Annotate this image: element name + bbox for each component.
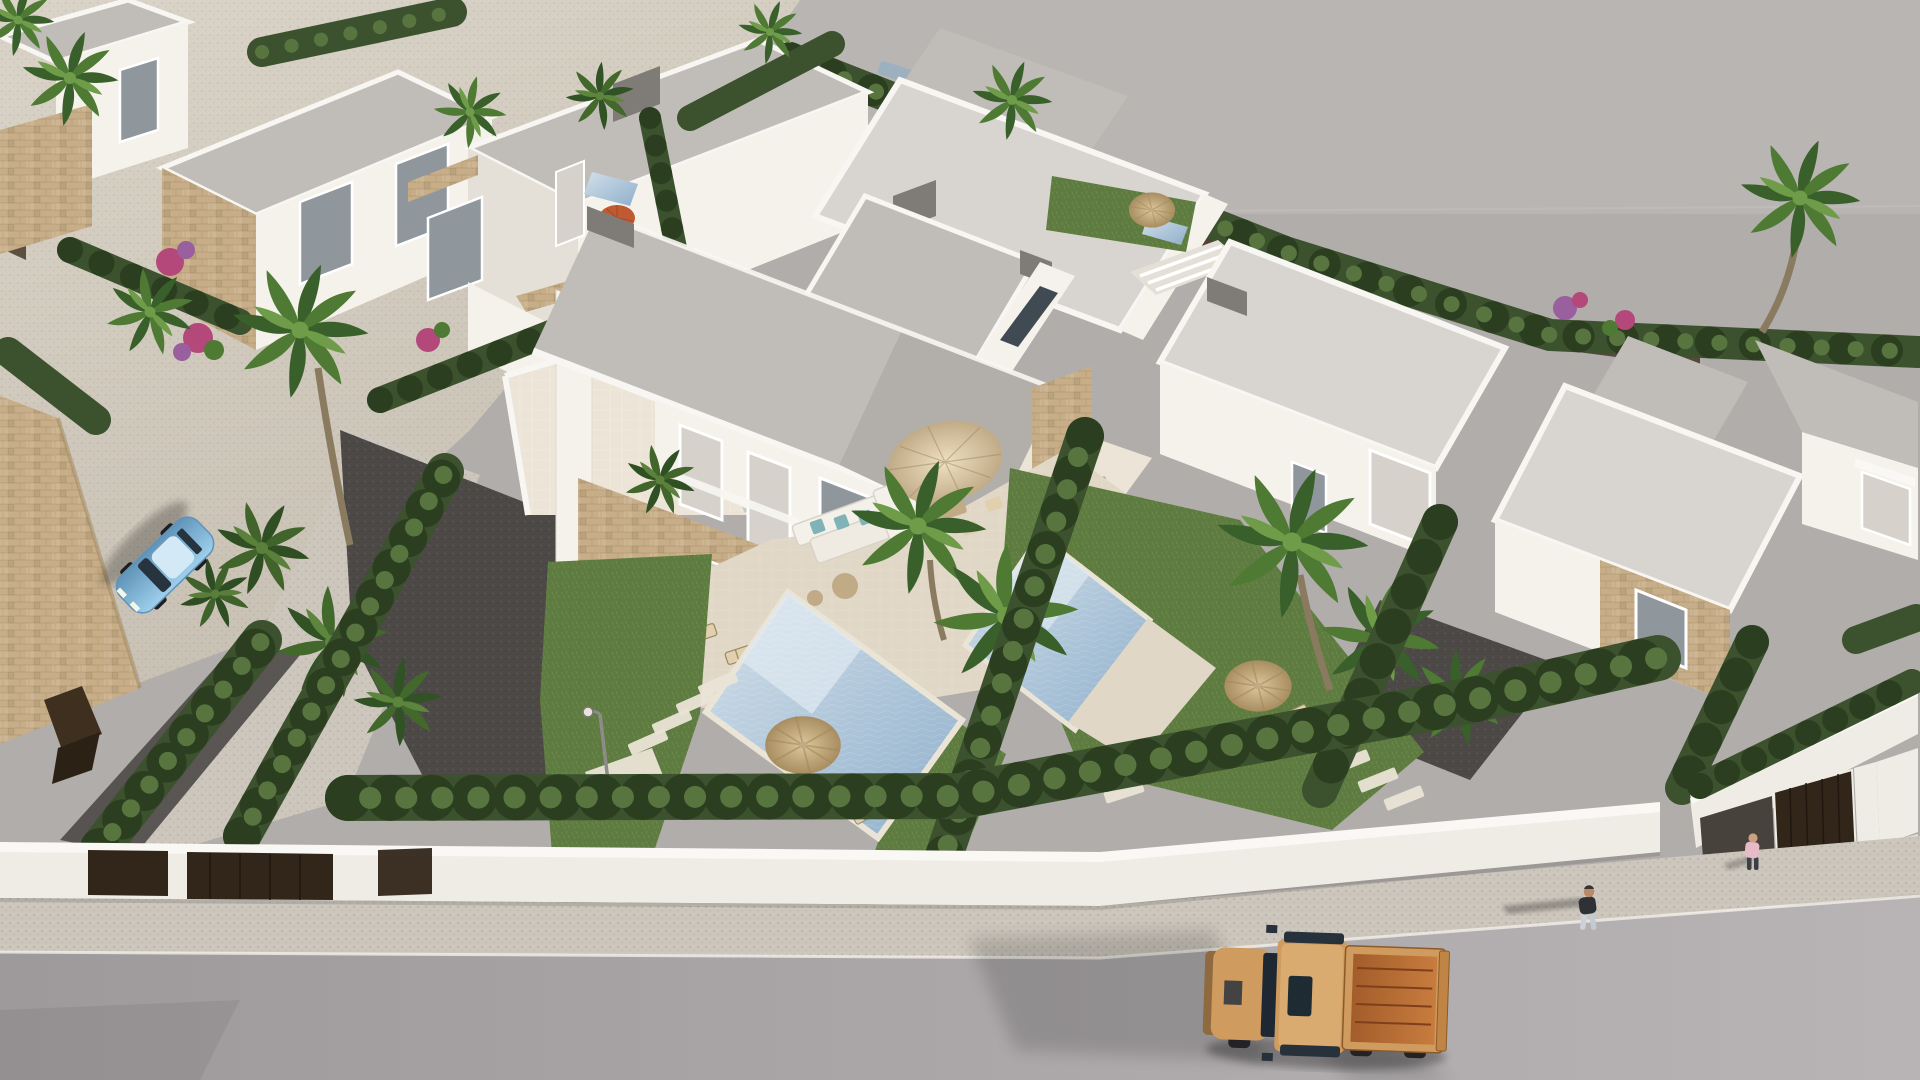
person-leg <box>1754 857 1759 870</box>
side-windows <box>1280 1044 1340 1057</box>
road-shading <box>0 1000 240 1080</box>
straw-parasol <box>1224 660 1291 711</box>
mirror <box>1266 925 1277 933</box>
person-head <box>1748 833 1757 842</box>
sunroof <box>1287 976 1312 1017</box>
render-canvas: Aerial 3D architectural render of a mode… <box>0 0 1920 1080</box>
coffee-table <box>832 573 858 599</box>
lamp-head <box>583 707 593 717</box>
garage-pillar <box>1854 762 1880 852</box>
garden-straw-parasol <box>765 716 841 774</box>
straw-parasol <box>1129 192 1175 227</box>
side-table <box>807 590 823 606</box>
gate <box>378 848 432 896</box>
window <box>120 58 158 142</box>
door <box>556 161 584 246</box>
hood-scoop <box>1224 980 1243 1005</box>
person-leg <box>1747 856 1752 870</box>
person-torso <box>1744 841 1760 858</box>
villa-development-render: Aerial 3D architectural render of a mode… <box>0 0 1920 1080</box>
window-bay-curtains <box>680 425 722 520</box>
driveway-gate <box>187 852 333 900</box>
person-torso <box>1578 896 1597 915</box>
pedestrian-gate <box>88 850 168 896</box>
mirror <box>1262 1053 1273 1061</box>
side-windows <box>1284 931 1344 944</box>
garage-side-wall <box>1876 748 1918 846</box>
